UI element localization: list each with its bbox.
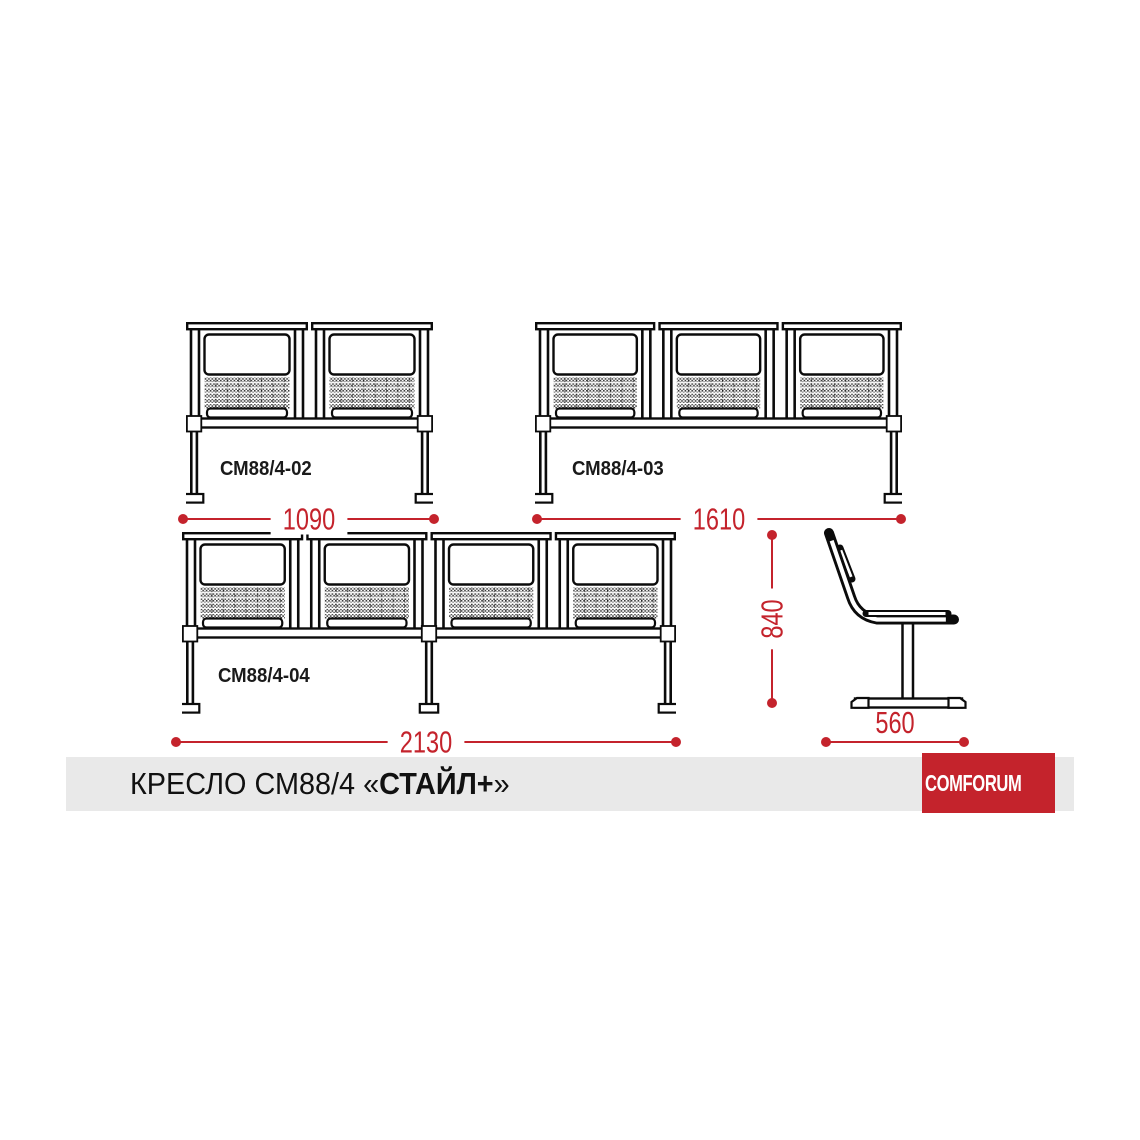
model-label-02: СМ88/4-02 — [220, 459, 312, 479]
dimension-value: 1610 — [681, 504, 758, 535]
dimension-value: 2130 — [388, 727, 465, 758]
comforum-logo: COMFORUM — [922, 753, 1055, 813]
dimension-value: 1090 — [270, 504, 347, 535]
dimension-value: 840 — [757, 589, 788, 650]
brand-name: COMFORUM — [925, 772, 1021, 795]
dimension-width-1090: 1090 — [178, 514, 439, 524]
technical-drawing-page: СМ88/4-02 СМ88/4-03 СМ88/4-04 1090 1610 … — [0, 0, 1140, 1140]
product-title-bold: СТАЙЛ+ — [379, 766, 494, 801]
dimension-height-840: 840 — [767, 530, 777, 708]
chair-side-view — [815, 522, 970, 716]
product-title: КРЕСЛО СМ88/4 «СТАЙЛ+» — [130, 766, 510, 802]
model-label-03: СМ88/4-03 — [572, 459, 664, 479]
dimension-width-2130: 2130 — [171, 737, 681, 747]
dimension-depth-560: 560 — [821, 737, 969, 747]
model-label-04: СМ88/4-04 — [218, 666, 310, 686]
dimension-line — [825, 741, 965, 743]
product-title-quote: » — [494, 766, 510, 801]
product-title-regular: КРЕСЛО СМ88/4 « — [130, 766, 379, 801]
